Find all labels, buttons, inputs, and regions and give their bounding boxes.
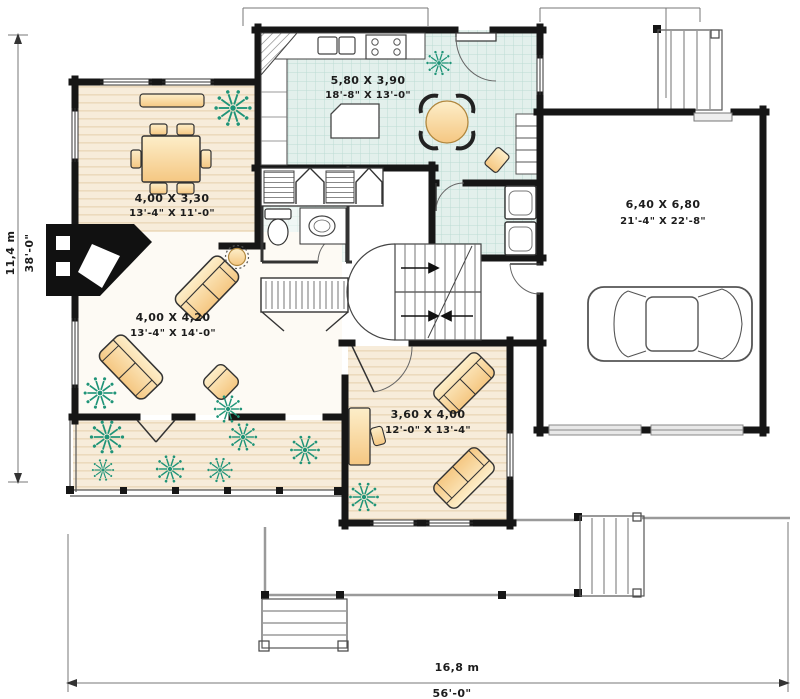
porch-edge bbox=[262, 518, 790, 595]
dining-table bbox=[142, 136, 200, 182]
kitchen-dims-imperial: 18'-8" X 13'-0" bbox=[325, 90, 411, 101]
kitchen-island bbox=[331, 104, 379, 138]
porch bbox=[262, 518, 790, 595]
bottom-dim-metric: 16,8 m bbox=[435, 661, 480, 674]
sideboard bbox=[140, 94, 204, 107]
coat-closet bbox=[261, 278, 348, 312]
steps-front-center bbox=[262, 599, 347, 648]
garage-dims-metric: 6,40 X 6,80 bbox=[626, 198, 701, 211]
den-dims-imperial: 12'-0" X 13'-4" bbox=[385, 425, 471, 436]
counter-left bbox=[261, 59, 287, 165]
car-icon bbox=[588, 287, 752, 361]
window bbox=[370, 520, 417, 526]
sink-basin bbox=[318, 37, 337, 54]
veranda-floor bbox=[73, 420, 343, 490]
toilet-bowl bbox=[268, 219, 288, 245]
breakfast-table bbox=[426, 101, 468, 143]
living-dims-metric: 4,00 X 4,20 bbox=[136, 311, 211, 324]
window bbox=[426, 520, 473, 526]
stove bbox=[366, 35, 406, 59]
steps-back bbox=[658, 30, 722, 110]
garage-back-door bbox=[694, 113, 732, 121]
sink bbox=[309, 216, 335, 236]
left-dim-imperial: 38'-0" bbox=[23, 233, 36, 272]
closet-shelf bbox=[326, 171, 354, 203]
sink-basin bbox=[339, 37, 355, 54]
living-dims-imperial: 13'-4" X 14'-0" bbox=[130, 328, 216, 339]
kitchen-dims-metric: 5,80 X 3,90 bbox=[331, 74, 406, 87]
garage-dims-imperial: 21'-4" X 22'-8" bbox=[620, 216, 706, 227]
window bbox=[72, 318, 78, 388]
window bbox=[162, 79, 214, 85]
steps-front-right bbox=[580, 516, 644, 596]
toilet-tank bbox=[265, 209, 291, 219]
dining-dims-metric: 4,00 X 3,30 bbox=[135, 192, 210, 205]
window bbox=[100, 79, 152, 85]
window bbox=[72, 108, 78, 162]
bottom-dim-imperial: 56'-0" bbox=[432, 687, 471, 699]
window bbox=[507, 430, 513, 480]
desk bbox=[349, 408, 370, 465]
garage-entry-door bbox=[510, 264, 540, 294]
den-dims-metric: 3,60 X 4,00 bbox=[391, 408, 466, 421]
stairs bbox=[347, 244, 481, 340]
steps-garage-interior bbox=[516, 114, 538, 174]
left-dim-metric: 11,4 m bbox=[4, 231, 17, 276]
window bbox=[537, 55, 543, 95]
powder-room-fixtures bbox=[265, 208, 346, 245]
closet-shelf bbox=[264, 171, 294, 203]
floor-plan: 5,80 X 3,90 18'-8" X 13'-0" 4,00 X 3,30 … bbox=[0, 0, 800, 699]
dining-dims-imperial: 13'-4" X 11'-0" bbox=[129, 208, 215, 219]
